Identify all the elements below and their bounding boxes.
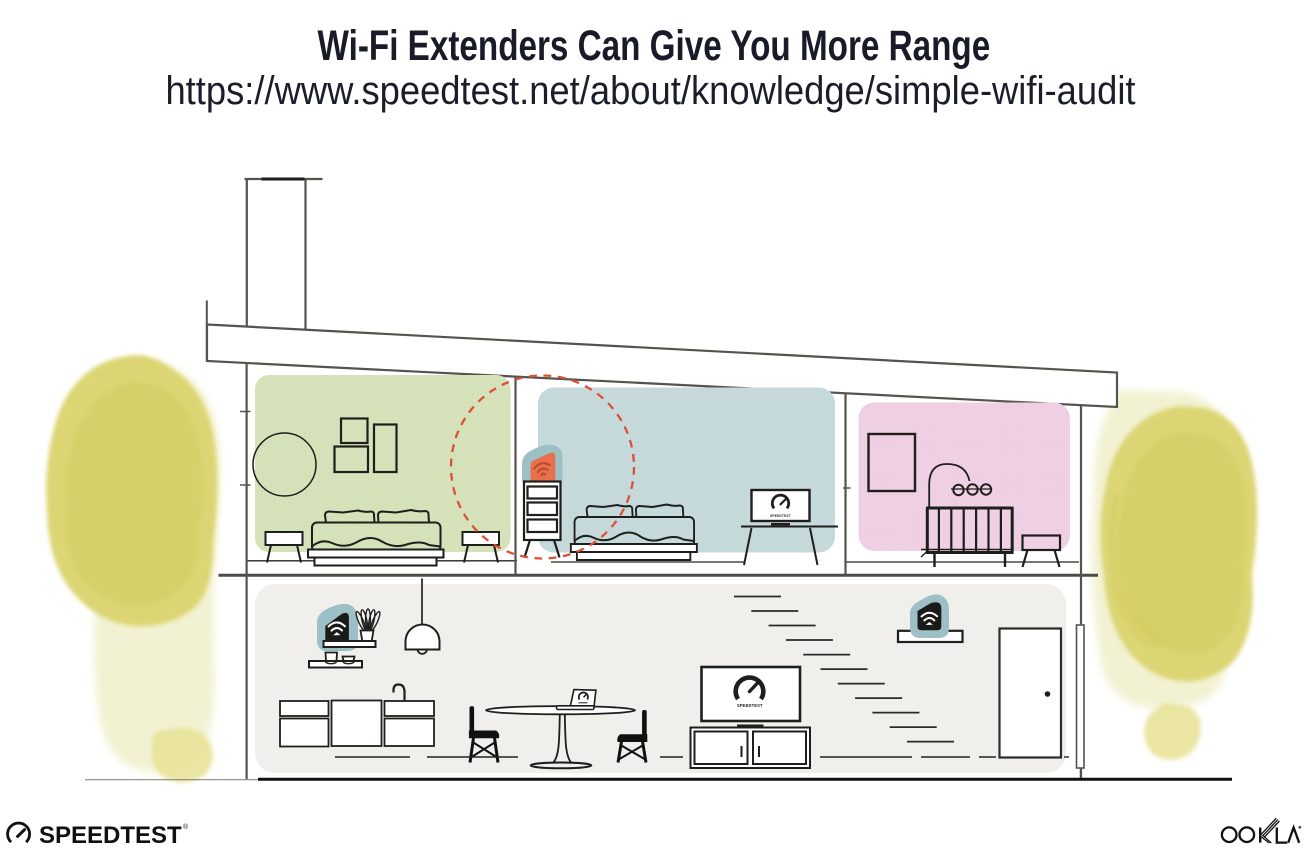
svg-text:SPEEDTEST: SPEEDTEST <box>737 703 763 708</box>
svg-text:SPEEDTEST: SPEEDTEST <box>39 822 182 849</box>
svg-text:SPEEDTEST: SPEEDTEST <box>770 514 791 518</box>
svg-text:®: ® <box>183 823 189 831</box>
